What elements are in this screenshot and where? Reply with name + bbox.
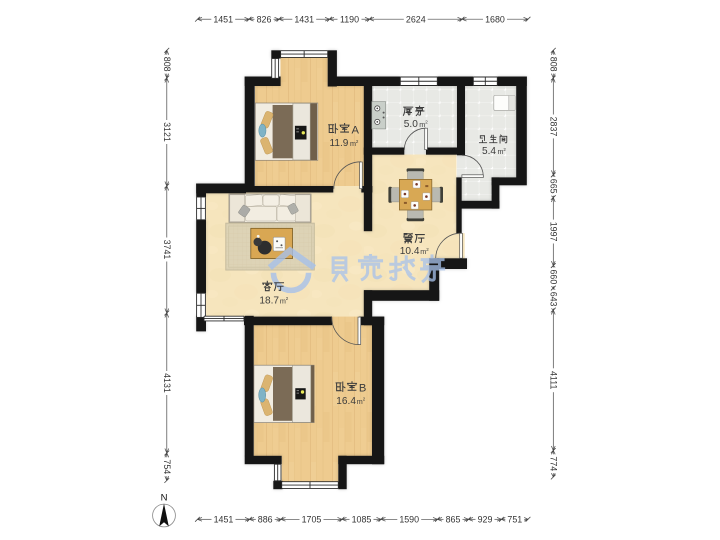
- svg-text:808: 808: [162, 57, 172, 72]
- svg-text:11.9: 11.9: [330, 138, 349, 149]
- svg-text:2624: 2624: [406, 14, 426, 24]
- svg-text:643: 643: [548, 292, 558, 307]
- svg-text:808: 808: [548, 57, 558, 72]
- svg-text:1431: 1431: [294, 14, 314, 24]
- svg-text:A: A: [352, 124, 360, 136]
- svg-text:754: 754: [162, 459, 172, 474]
- svg-text:3741: 3741: [162, 240, 172, 260]
- svg-text:5.0: 5.0: [404, 119, 418, 130]
- svg-text:18.7: 18.7: [259, 295, 279, 306]
- svg-text:1590: 1590: [399, 514, 419, 524]
- svg-text:1190: 1190: [340, 14, 359, 24]
- svg-text:865: 865: [446, 514, 461, 524]
- svg-text:4131: 4131: [162, 373, 172, 393]
- svg-text:16.4: 16.4: [336, 396, 356, 407]
- svg-text:1451: 1451: [213, 14, 233, 24]
- svg-text:660: 660: [548, 269, 558, 284]
- svg-text:B: B: [359, 383, 366, 395]
- svg-text:N: N: [161, 493, 168, 504]
- svg-text:751: 751: [507, 514, 522, 524]
- svg-text:1680: 1680: [485, 14, 505, 24]
- svg-text:929: 929: [478, 514, 493, 524]
- svg-text:1705: 1705: [302, 514, 322, 524]
- svg-text:826: 826: [257, 14, 272, 24]
- svg-text:665: 665: [548, 179, 558, 194]
- svg-text:1451: 1451: [214, 514, 234, 524]
- svg-text:4111: 4111: [548, 371, 558, 389]
- svg-text:1997: 1997: [548, 222, 558, 242]
- svg-text:3121: 3121: [162, 122, 172, 142]
- svg-text:886: 886: [258, 514, 273, 524]
- svg-text:1085: 1085: [352, 514, 372, 524]
- svg-text:10.4: 10.4: [400, 246, 420, 257]
- svg-text:5.4: 5.4: [482, 146, 496, 157]
- svg-text:2837: 2837: [548, 117, 558, 137]
- svg-text:774: 774: [548, 456, 558, 471]
